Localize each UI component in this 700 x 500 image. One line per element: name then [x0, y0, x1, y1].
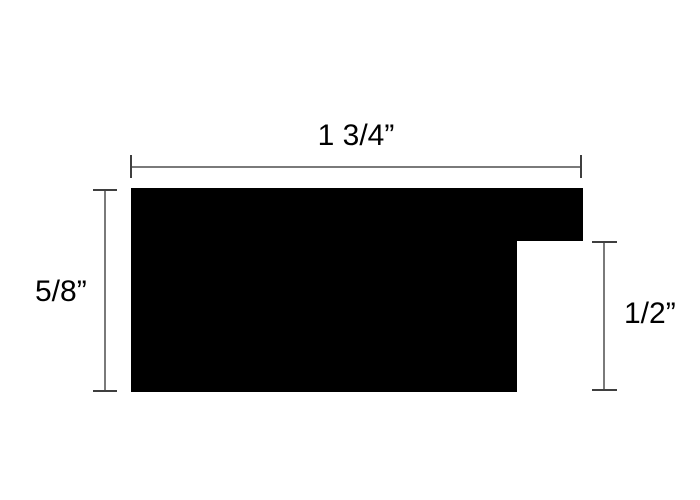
notch-dimension-bottom-tick	[592, 389, 617, 391]
height-dimension-label: 5/8”	[35, 277, 87, 307]
width-dimension-label: 1 3/4”	[131, 121, 581, 151]
height-dimension-line	[104, 190, 106, 391]
notch-dimension-top-tick	[592, 241, 617, 243]
profile-top-lip	[517, 188, 583, 241]
height-dimension-bottom-tick	[93, 390, 117, 392]
notch-dimension-label: 1/2”	[624, 299, 676, 329]
width-dimension-right-tick	[580, 155, 582, 178]
profile-body	[131, 188, 517, 392]
width-dimension-left-tick	[130, 155, 132, 178]
profile-diagram: 1 3/4” 5/8” 1/2”	[0, 0, 700, 500]
height-dimension-top-tick	[93, 189, 117, 191]
width-dimension-line	[131, 166, 581, 168]
notch-dimension-line	[603, 242, 605, 390]
